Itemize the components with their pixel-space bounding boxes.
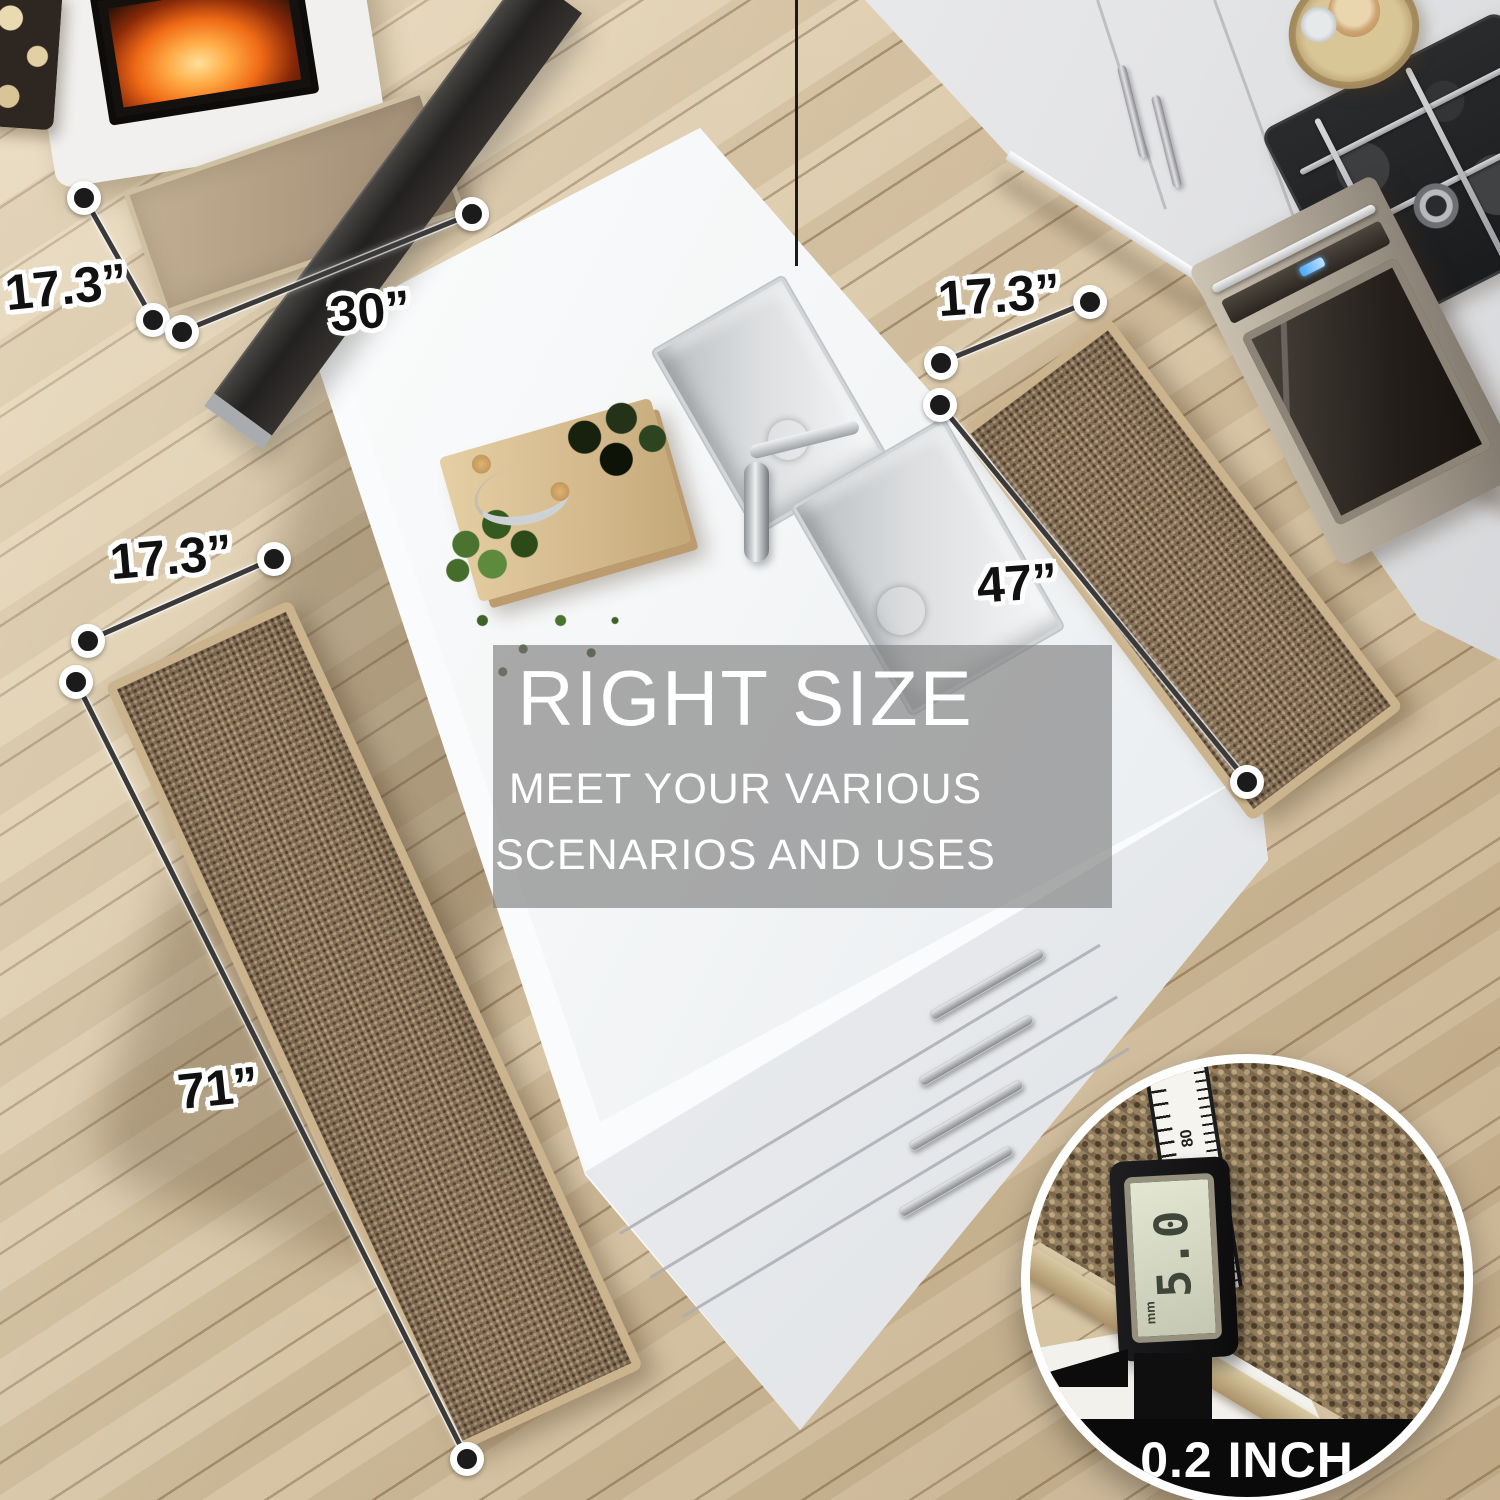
faucet xyxy=(744,462,769,562)
dimension-dot xyxy=(165,315,199,349)
oven-display-light xyxy=(1298,256,1326,277)
dimension-dot xyxy=(59,665,93,699)
dimension-dot xyxy=(1073,285,1107,319)
dimension-dot xyxy=(450,1442,484,1476)
banner-title: RIGHT SIZE xyxy=(493,653,998,744)
dimension-dot xyxy=(923,388,957,422)
firewood-stack xyxy=(0,0,63,130)
kitchen-scene: RIGHT SIZE MEET YOUR VARIOUS SCENARIOS A… xyxy=(0,0,1500,1500)
caliper-lcd: 5.0 mm xyxy=(1124,1173,1223,1343)
inset-caption-band: 0.2 INCH xyxy=(1021,1419,1473,1500)
sink-drain xyxy=(877,587,925,635)
digital-caliper: 5.0 mm xyxy=(1109,1156,1239,1362)
inset-caption: 0.2 INCH xyxy=(1021,1431,1473,1489)
dimension-dot xyxy=(71,624,105,658)
dimension-dot xyxy=(1230,765,1264,799)
knife-handle xyxy=(470,452,494,476)
ruler-number: 80 xyxy=(1178,1128,1199,1148)
caliper-reading: 5.0 xyxy=(1143,1208,1202,1300)
thickness-detail-inset: 90 80 70 3 5.0 mm 0.2 INCH xyxy=(1021,1054,1473,1500)
banner-subtitle-2: SCENARIOS AND USES xyxy=(493,831,998,880)
dimension-dot xyxy=(455,197,489,231)
fire-glow xyxy=(108,0,301,107)
caliper-unit: mm xyxy=(1142,1301,1158,1325)
label-right-runner-length: 47” xyxy=(945,549,1089,617)
dimension-dot xyxy=(257,542,291,576)
overlay-banner: RIGHT SIZE MEET YOUR VARIOUS SCENARIOS A… xyxy=(493,645,1112,908)
caliper-rod xyxy=(1134,1353,1212,1425)
pendant-cable xyxy=(795,0,798,266)
label-door-mat-length: 30” xyxy=(298,276,443,346)
dimension-dot xyxy=(924,346,958,380)
dimension-dot xyxy=(67,181,101,215)
firebox xyxy=(90,0,320,126)
label-right-runner-width: 17.3” xyxy=(922,261,1076,329)
banner-subtitle-1: MEET YOUR VARIOUS xyxy=(493,765,998,814)
